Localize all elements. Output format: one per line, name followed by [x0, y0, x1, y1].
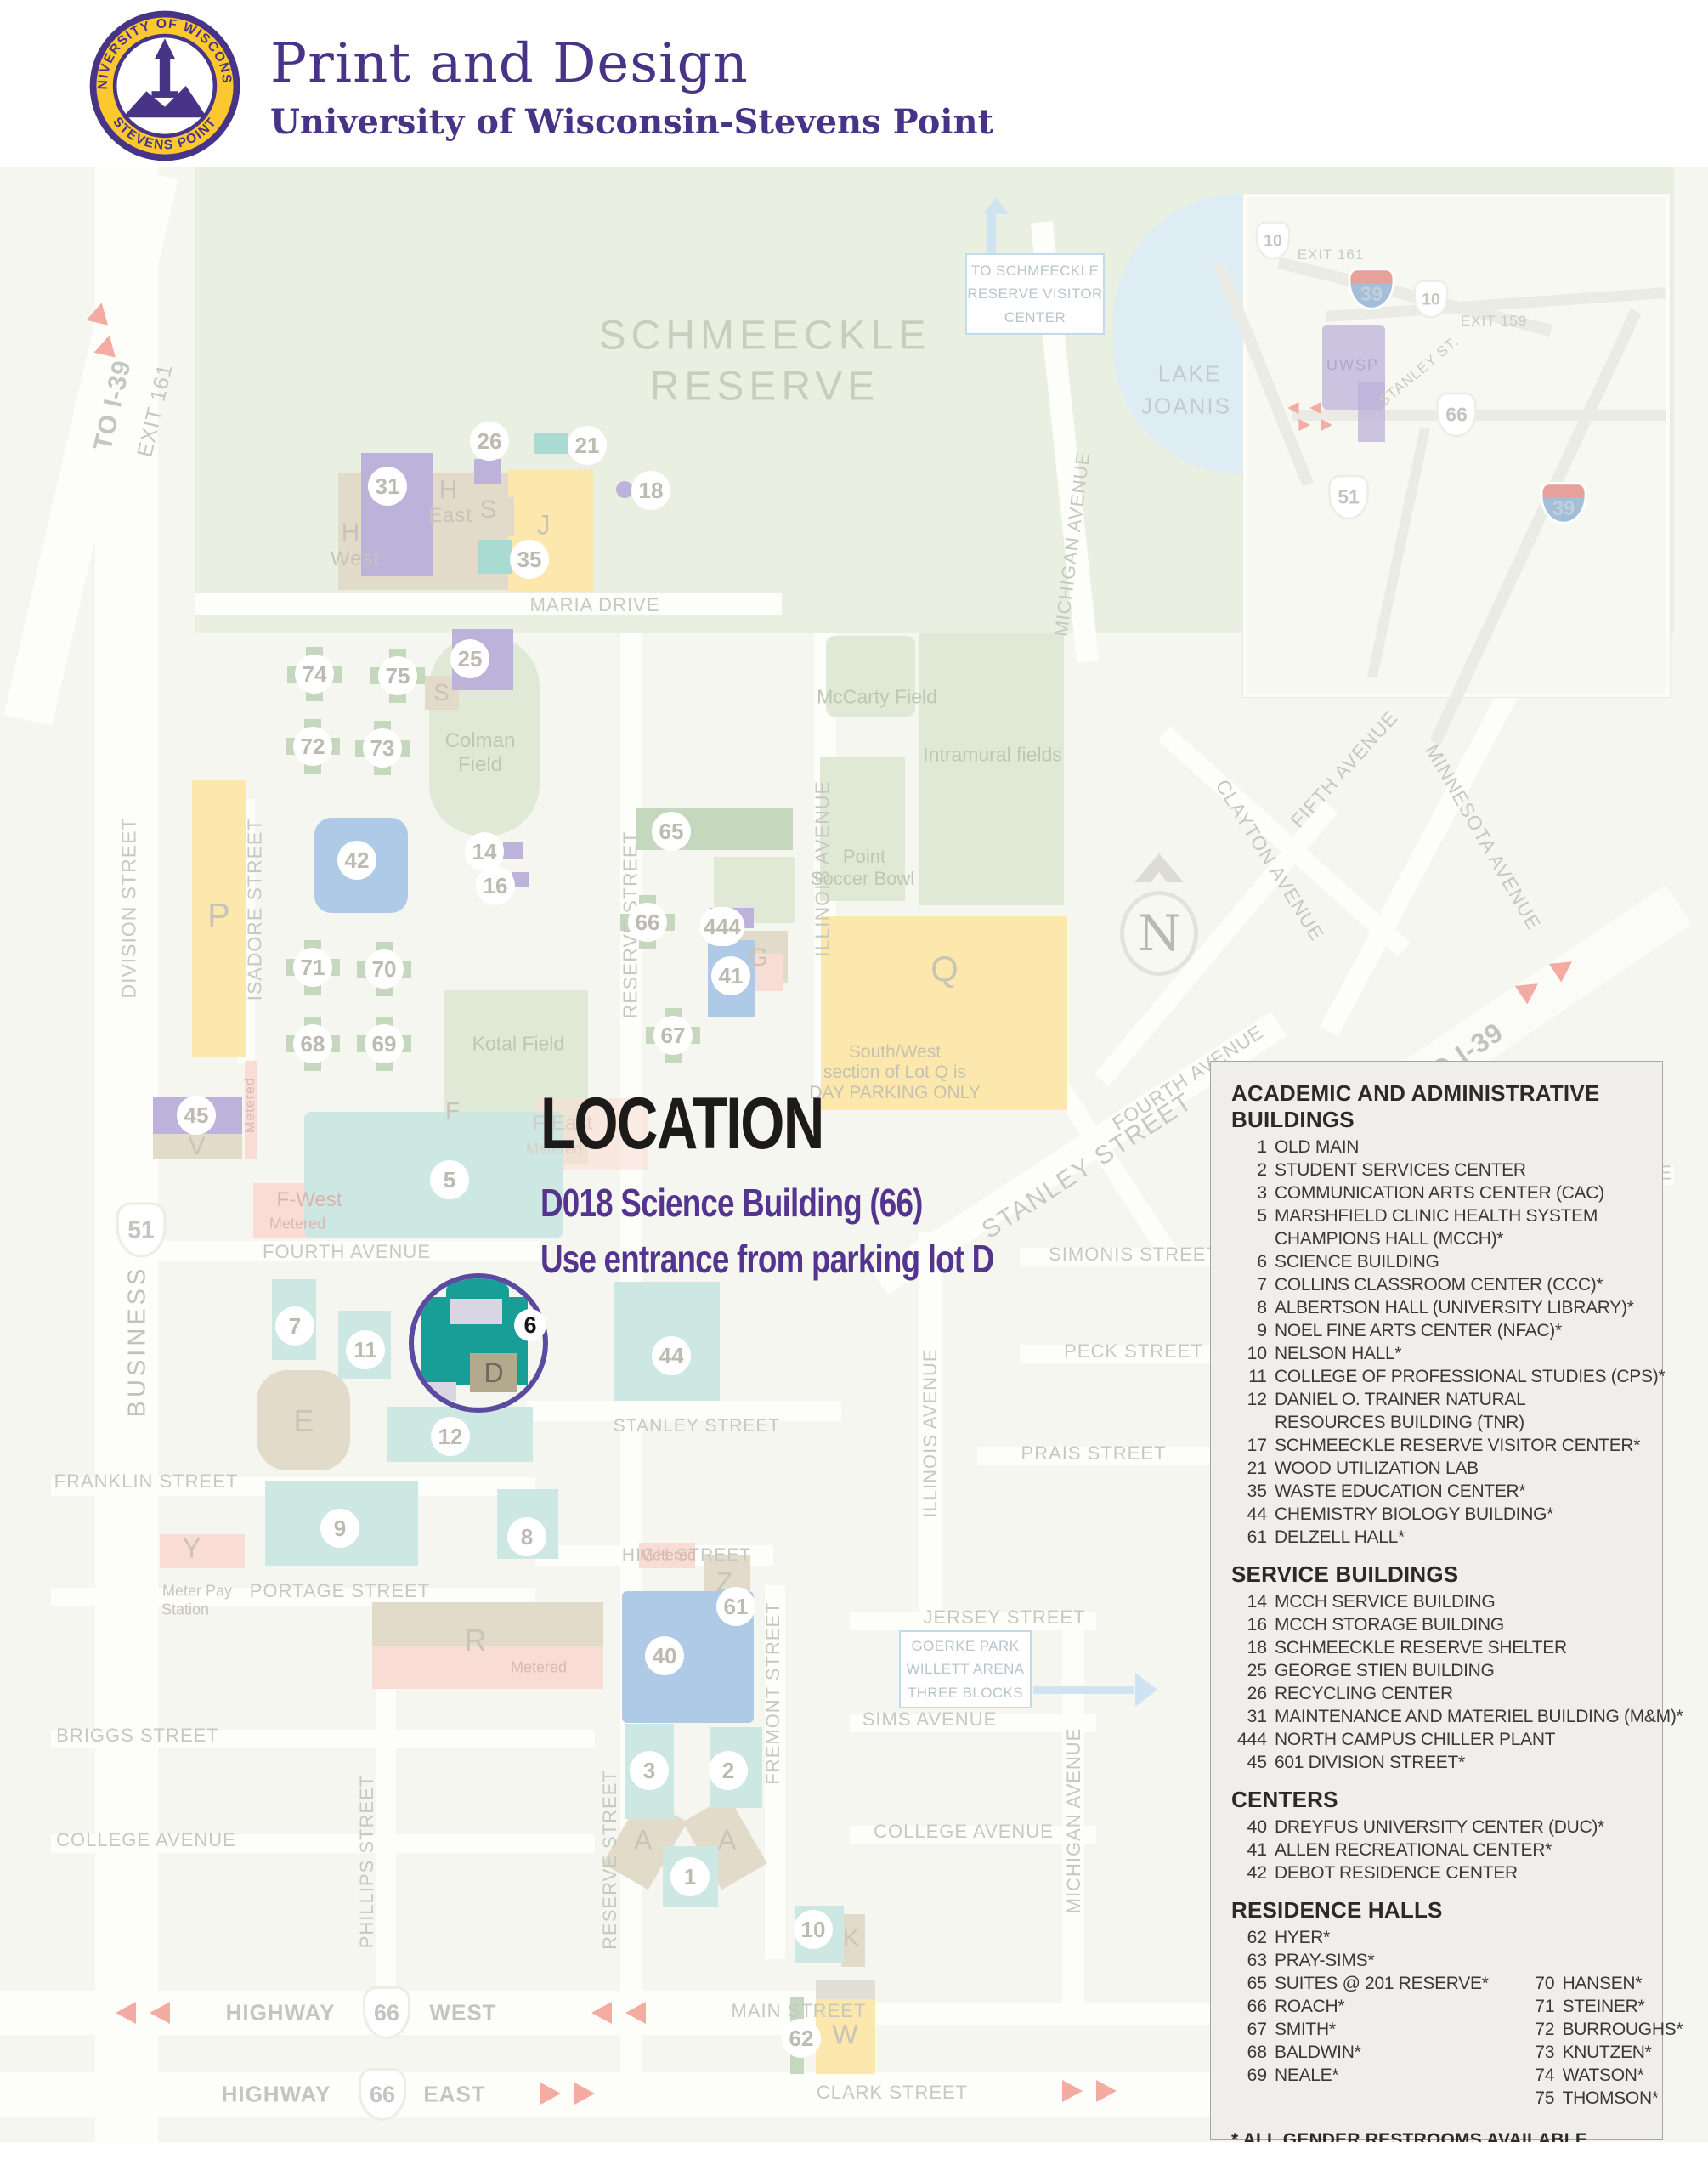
legend-item-name: PRAY-SIMS* [1275, 1949, 1374, 1972]
interstate-shield-39: 39 [1348, 268, 1394, 309]
legend-item: 26RECYCLING CENTER [1231, 1682, 1649, 1705]
location-callout: LOCATION D018 Science Building (66) Use … [540, 1090, 1107, 1282]
legend-item-name: 601 DIVISION STREET* [1275, 1751, 1465, 1774]
legend-item-number: 17 [1231, 1434, 1275, 1457]
residence-col-right: 70HANSEN*71STEINER*72BURROUGHS*73KNUTZEN… [1519, 1972, 1683, 2110]
legend-item: 17SCHMEECKLE RESERVE VISITOR CENTER* [1231, 1434, 1649, 1457]
legend-item-name: ROACH* [1275, 1995, 1344, 2018]
legend-item-name: DREYFUS UNIVERSITY CENTER (DUC)* [1275, 1816, 1604, 1839]
header: UNIVERSITY OF WISCONSIN STEVENS POINT Pr… [0, 0, 1708, 167]
legend-item-number: 69 [1231, 2064, 1275, 2087]
legend-item-number: 71 [1519, 1995, 1563, 2018]
legend-item-name: SCHMEECKLE RESERVE SHELTER [1275, 1636, 1567, 1659]
legend-item-name: COMMUNICATION ARTS CENTER (CAC) [1275, 1181, 1604, 1204]
legend-item-number: 10 [1231, 1342, 1275, 1365]
legend-item: 41ALLEN RECREATIONAL CENTER* [1231, 1839, 1649, 1861]
inset-road [1213, 262, 1314, 487]
interstate-shield-39: 39 [1540, 482, 1586, 524]
legend-item-name: THOMSON* [1563, 2087, 1659, 2110]
campus-map: TO I-39EXIT 161MICHIGAN AVENUEMARIA DRIV… [0, 167, 1708, 2142]
legend-heading: ACADEMIC AND ADMINISTRATIVEBUILDINGS [1231, 1080, 1649, 1133]
legend-item: 21WOOD UTILIZATION LAB [1231, 1457, 1649, 1480]
legend-item: 2STUDENT SERVICES CENTER [1231, 1159, 1649, 1181]
route-shield-66: 66 [1436, 393, 1477, 438]
legend-item-name: HANSEN* [1563, 1972, 1643, 1995]
legend-item-number [1231, 1411, 1275, 1434]
legend-item: 45601 DIVISION STREET* [1231, 1751, 1649, 1774]
legend-item: 40DREYFUS UNIVERSITY CENTER (DUC)* [1231, 1816, 1649, 1839]
legend-item: 61DELZELL HALL* [1231, 1526, 1649, 1549]
legend-item-name: NELSON HALL* [1275, 1342, 1401, 1365]
legend-item-name: MARSHFIELD CLINIC HEALTH SYSTEM [1275, 1204, 1598, 1227]
legend-item-name: KNUTZEN* [1563, 2041, 1652, 2064]
legend-item: 74WATSON* [1519, 2064, 1683, 2087]
legend-item-name: RECYCLING CENTER [1275, 1682, 1453, 1705]
legend-item-number: 73 [1519, 2041, 1563, 2064]
legend-item-number: 1 [1231, 1136, 1275, 1159]
inset-label: EXIT 161 [1298, 246, 1365, 263]
legend-item-number: 44 [1231, 1503, 1275, 1526]
legend-item-number: 41 [1231, 1839, 1275, 1861]
legend-item-number: 45 [1231, 1751, 1275, 1774]
legend-item-name: MCCH STORAGE BUILDING [1275, 1613, 1504, 1636]
highlight-ring [409, 1273, 548, 1413]
building-badge-6-highlight: 6 [514, 1309, 546, 1341]
inset-label: UWSP [1326, 357, 1379, 375]
uwsp-seal-logo: UNIVERSITY OF WISCONSIN STEVENS POINT [75, 7, 255, 165]
legend-item-name: WATSON* [1563, 2064, 1644, 2087]
legend-item-number: 62 [1231, 1926, 1275, 1949]
legend-item-number: 2 [1231, 1159, 1275, 1181]
legend-item-name: HYER* [1275, 1926, 1330, 1949]
legend-item: 73KNUTZEN* [1519, 2041, 1683, 2064]
legend-item: 31MAINTENANCE AND MATERIEL BUILDING (M&M… [1231, 1705, 1649, 1728]
legend-item: 68BALDWIN* [1231, 2041, 1489, 2064]
legend-item-number: 67 [1231, 2018, 1275, 2041]
legend-item: 70HANSEN* [1519, 1972, 1683, 1995]
legend-item: 65SUITES @ 201 RESERVE* [1231, 1972, 1489, 1995]
legend-item: 63PRAY-SIMS* [1231, 1949, 1489, 1972]
legend-item: 62HYER* [1231, 1926, 1489, 1949]
legend-item-number: 31 [1231, 1705, 1275, 1728]
legend-item-number: 72 [1519, 2018, 1563, 2041]
callout-line2: Use entrance from parking lot D [540, 1236, 993, 1282]
location-highlight: D 6 [409, 1273, 548, 1413]
legend-item-number: 65 [1231, 1972, 1275, 1995]
legend-item-number: 18 [1231, 1636, 1275, 1659]
legend-heading-line: ACADEMIC AND ADMINISTRATIVE [1231, 1080, 1649, 1107]
legend-item: 42DEBOT RESIDENCE CENTER [1231, 1861, 1649, 1884]
inset-label: EXIT 159 [1461, 313, 1528, 330]
direction-arrow-icon [1287, 402, 1298, 414]
legend-item: 10NELSON HALL* [1231, 1342, 1649, 1365]
legend-item: 3COMMUNICATION ARTS CENTER (CAC) [1231, 1181, 1649, 1204]
legend-item-name: COLLEGE OF PROFESSIONAL STUDIES (CPS)* [1275, 1365, 1665, 1388]
legend-item-name: ALLEN RECREATIONAL CENTER* [1275, 1839, 1552, 1861]
legend-item-number: 6 [1231, 1250, 1275, 1273]
page-subtitle: University of Wisconsin-Stevens Point [270, 102, 993, 142]
legend-item-name: DELZELL HALL* [1275, 1526, 1405, 1549]
legend-item-number: 21 [1231, 1457, 1275, 1480]
legend-heading-line: SERVICE BUILDINGS [1231, 1561, 1649, 1588]
legend-item: 69NEALE* [1231, 2064, 1489, 2087]
map-legend: ACADEMIC AND ADMINISTRATIVEBUILDINGS1OLD… [1210, 1061, 1663, 2140]
legend-item-number: 444 [1231, 1728, 1275, 1751]
legend-item-name: MAINTENANCE AND MATERIEL BUILDING (M&M)* [1275, 1705, 1683, 1728]
legend-item-name: SCHMEECKLE RESERVE VISITOR CENTER* [1275, 1434, 1640, 1457]
legend-item-name: WASTE EDUCATION CENTER* [1275, 1480, 1525, 1503]
route-shield-51: 51 [1328, 475, 1369, 520]
legend-item: 25GEORGE STIEN BUILDING [1231, 1659, 1649, 1682]
legend-item: 71STEINER* [1519, 1995, 1683, 2018]
legend-item-name: NOEL FINE ARTS CENTER (NFAC)* [1275, 1319, 1562, 1342]
legend-item-number: 40 [1231, 1816, 1275, 1839]
legend-item: 35WASTE EDUCATION CENTER* [1231, 1480, 1649, 1503]
legend-item-name: CHAMPIONS HALL (MCCH)* [1275, 1227, 1503, 1250]
legend-item: 9NOEL FINE ARTS CENTER (NFAC)* [1231, 1319, 1649, 1342]
legend-item: 44CHEMISTRY BIOLOGY BUILDING* [1231, 1503, 1649, 1526]
callout-title: LOCATION [540, 1090, 982, 1159]
legend-item: 12DANIEL O. TRAINER NATURAL [1231, 1388, 1649, 1411]
legend-item-name: SUITES @ 201 RESERVE* [1275, 1972, 1489, 1995]
legend-item: 6SCIENCE BUILDING [1231, 1250, 1649, 1273]
inset-road [1292, 410, 1666, 421]
legend-item-number: 66 [1231, 1995, 1275, 2018]
direction-arrow-icon [1309, 402, 1321, 414]
legend-item-number: 74 [1519, 2064, 1563, 2087]
legend-note: * ALL GENDER RESTROOMS AVAILABLE [1231, 2130, 1649, 2142]
legend-item-name: DEBOT RESIDENCE CENTER [1275, 1861, 1518, 1884]
legend-heading: SERVICE BUILDINGS [1231, 1561, 1649, 1588]
legend-item: 67SMITH* [1231, 2018, 1489, 2041]
legend-item-name: WOOD UTILIZATION LAB [1275, 1457, 1479, 1480]
legend-item: 18SCHMEECKLE RESERVE SHELTER [1231, 1636, 1649, 1659]
legend-item: 8ALBERTSON HALL (UNIVERSITY LIBRARY)* [1231, 1296, 1649, 1319]
direction-arrow-icon [1321, 419, 1332, 431]
route-shield-10: 10 [1256, 222, 1290, 260]
callout-line1: D018 Science Building (66) [540, 1180, 993, 1226]
page: UNIVERSITY OF WISCONSIN STEVENS POINT Pr… [0, 0, 1708, 2176]
legend-item-name: ALBERTSON HALL (UNIVERSITY LIBRARY)* [1275, 1296, 1634, 1319]
legend-item-number: 14 [1231, 1590, 1275, 1613]
legend-item: 1OLD MAIN [1231, 1136, 1649, 1159]
legend-item-name: NORTH CAMPUS CHILLER PLANT [1275, 1728, 1555, 1751]
legend-item-name: MCCH SERVICE BUILDING [1275, 1590, 1495, 1613]
page-title: Print and Design [270, 32, 749, 95]
legend-item-name: COLLINS CLASSROOM CENTER (CCC)* [1275, 1273, 1603, 1296]
inset-road [1367, 427, 1430, 678]
legend-item: 72BURROUGHS* [1519, 2018, 1683, 2041]
legend-item-number: 75 [1519, 2087, 1563, 2110]
legend-item-name: BURROUGHS* [1563, 2018, 1683, 2041]
direction-arrow-icon [1298, 419, 1309, 431]
legend-item-name: STEINER* [1563, 1995, 1645, 2018]
legend-item-name: GEORGE STIEN BUILDING [1275, 1659, 1495, 1682]
legend-heading-line: BUILDINGS [1231, 1107, 1649, 1133]
legend-item: 7COLLINS CLASSROOM CENTER (CCC)* [1231, 1273, 1649, 1296]
legend-item-number: 63 [1231, 1949, 1275, 1972]
legend-item: 444NORTH CAMPUS CHILLER PLANT [1231, 1728, 1649, 1751]
legend-item-number: 7 [1231, 1273, 1275, 1296]
legend-heading-line: CENTERS [1231, 1787, 1649, 1813]
legend-item-name: SCIENCE BUILDING [1275, 1250, 1439, 1273]
legend-heading: RESIDENCE HALLS [1231, 1897, 1649, 1924]
inset-road [1429, 309, 1641, 745]
legend-item: 5MARSHFIELD CLINIC HEALTH SYSTEM [1231, 1204, 1649, 1227]
legend-item-name: CHEMISTRY BIOLOGY BUILDING* [1275, 1503, 1553, 1526]
legend-item-number: 16 [1231, 1613, 1275, 1636]
legend-item-name: STUDENT SERVICES CENTER [1275, 1159, 1526, 1181]
legend-item-name: BALDWIN* [1275, 2041, 1360, 2064]
legend-item-name: DANIEL O. TRAINER NATURAL [1275, 1388, 1526, 1411]
legend-heading: CENTERS [1231, 1787, 1649, 1813]
legend-item-number: 42 [1231, 1861, 1275, 1884]
legend-item-number: 26 [1231, 1682, 1275, 1705]
residence-columns: 62HYER*63PRAY-SIMS*65SUITES @ 201 RESERV… [1231, 1926, 1649, 2110]
legend-item: RESOURCES BUILDING (TNR) [1231, 1411, 1649, 1434]
legend-item-number: 11 [1231, 1365, 1275, 1388]
legend-item: 16MCCH STORAGE BUILDING [1231, 1613, 1649, 1636]
legend-item-number: 12 [1231, 1388, 1275, 1411]
legend-item-number: 3 [1231, 1181, 1275, 1204]
legend-item-number: 35 [1231, 1480, 1275, 1503]
legend-item-name: NEALE* [1275, 2064, 1338, 2087]
legend-item-number: 5 [1231, 1204, 1275, 1227]
legend-item: 14MCCH SERVICE BUILDING [1231, 1590, 1649, 1613]
legend-item-number: 68 [1231, 2041, 1275, 2064]
residence-col-left: 62HYER*63PRAY-SIMS*65SUITES @ 201 RESERV… [1231, 1926, 1489, 2110]
legend-item-name: RESOURCES BUILDING (TNR) [1275, 1411, 1524, 1434]
legend-item-name: SMITH* [1275, 2018, 1336, 2041]
legend-item-number: 70 [1519, 1972, 1563, 1995]
legend-item-name: OLD MAIN [1275, 1136, 1359, 1159]
legend-item-number: 61 [1231, 1526, 1275, 1549]
legend-item: CHAMPIONS HALL (MCCH)* [1231, 1227, 1649, 1250]
legend-item: 11COLLEGE OF PROFESSIONAL STUDIES (CPS)* [1231, 1365, 1649, 1388]
legend-heading-line: RESIDENCE HALLS [1231, 1897, 1649, 1924]
legend-item-number: 8 [1231, 1296, 1275, 1319]
legend-item-number: 9 [1231, 1319, 1275, 1342]
legend-item: 75THOMSON* [1519, 2087, 1683, 2110]
legend-item-number: 25 [1231, 1659, 1275, 1682]
legend-item-number [1231, 1227, 1275, 1250]
legend-item: 66ROACH* [1231, 1995, 1489, 2018]
